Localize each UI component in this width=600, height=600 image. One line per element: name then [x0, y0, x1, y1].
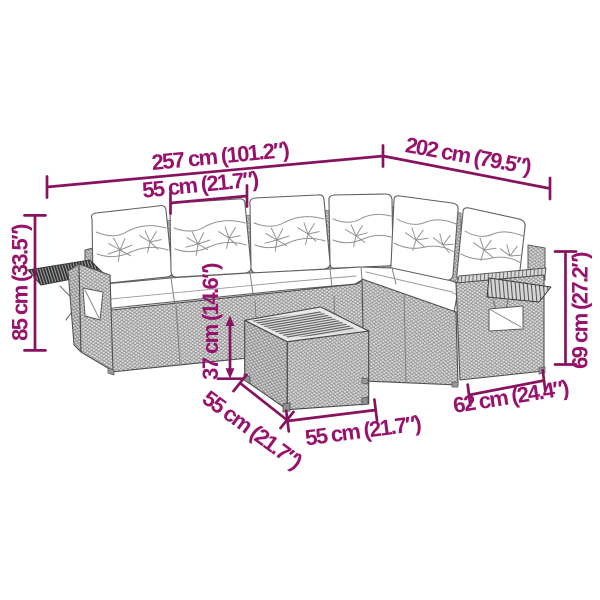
svg-text:69 cm (27.2″): 69 cm (27.2″): [568, 252, 593, 369]
svg-text:37 cm (14.6″): 37 cm (14.6″): [198, 263, 223, 380]
svg-text:85 cm (33.5″): 85 cm (33.5″): [8, 224, 33, 341]
